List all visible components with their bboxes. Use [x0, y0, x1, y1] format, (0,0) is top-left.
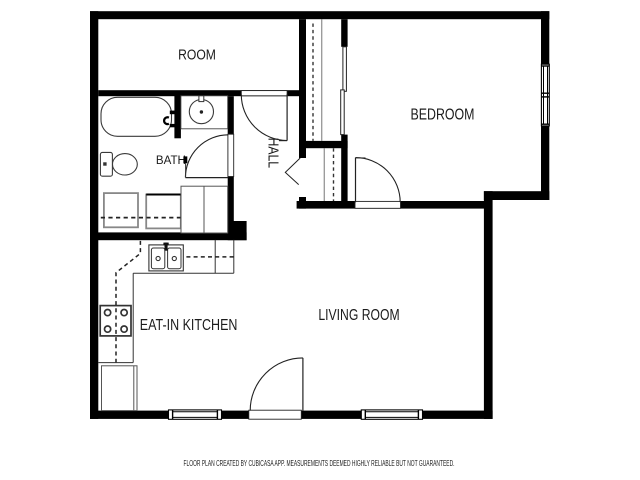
- svg-text:EAT-IN KITCHEN: EAT-IN KITCHEN: [140, 316, 238, 334]
- svg-text:HALL: HALL: [265, 138, 282, 168]
- svg-text:ROOM: ROOM: [178, 47, 216, 64]
- svg-text:BATH: BATH: [156, 155, 186, 167]
- svg-text:FLOOR PLAN CREATED BY CUBICASA: FLOOR PLAN CREATED BY CUBICASA APP. MEAS…: [184, 459, 455, 468]
- svg-text:LIVING ROOM: LIVING ROOM: [318, 307, 399, 324]
- svg-text:BEDROOM: BEDROOM: [411, 106, 475, 123]
